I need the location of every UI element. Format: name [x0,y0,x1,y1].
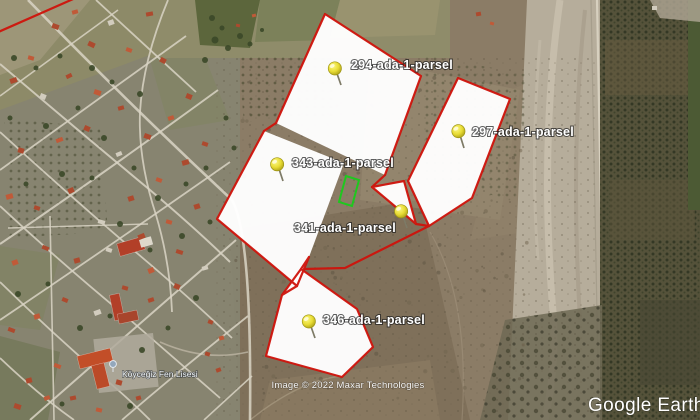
map-canvas[interactable]: 294-ada-1-parsel 297-ada-1-parsel 343-ad… [0,0,700,420]
parcel-label-346[interactable]: 346-ada-1-parsel [323,313,425,327]
imagery-credit-text: Image © 2022 Maxar Technologies [272,380,425,391]
parcel-label-341[interactable]: 341-ada-1-parsel [294,221,396,235]
parcel-label-297[interactable]: 297-ada-1-parsel [472,125,574,139]
google-earth-logo: Google Earth [588,395,700,416]
google-earth-viewport[interactable]: 294-ada-1-parsel 297-ada-1-parsel 343-ad… [0,0,700,420]
parcel-label-294[interactable]: 294-ada-1-parsel [351,58,453,72]
school-poi-label[interactable]: Köyceğiz Fen Lisesi [122,369,198,379]
parcel-label-343[interactable]: 343-ada-1-parsel [292,156,394,170]
